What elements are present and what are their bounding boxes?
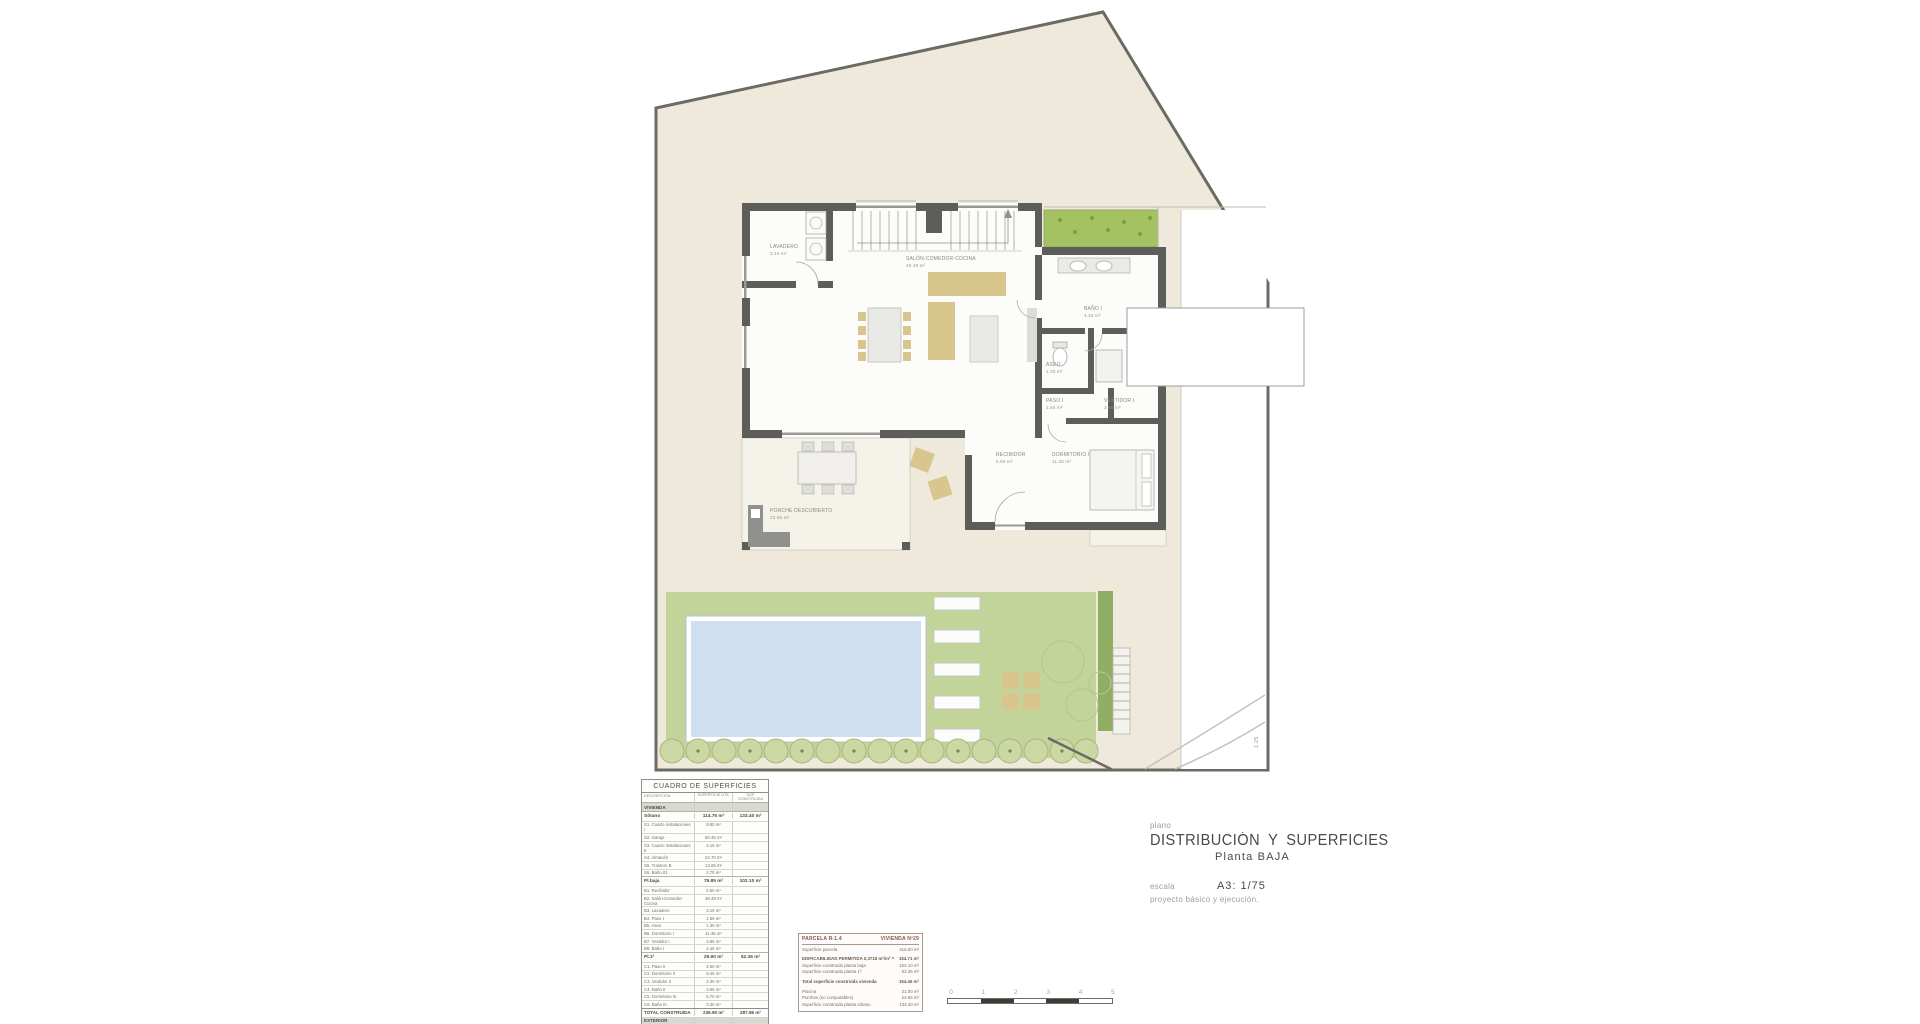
row-built-value [733, 854, 768, 861]
table-row: S5. Trastero B 13.05 m² [642, 861, 768, 869]
row-built-value [733, 915, 768, 922]
sheet-title: DISTRIBUCIÓN Y SUPERFICIES [1150, 832, 1362, 850]
table-row: Sótano 114.75 m² 133.40 m² [642, 811, 768, 821]
row-built-value [733, 1001, 768, 1008]
row-util-value [695, 804, 733, 811]
row-util-value: 24.70 m² [695, 854, 733, 861]
row-built-value [733, 986, 768, 993]
row-util-value: 2.70 m² [695, 870, 733, 877]
row-built-value [733, 978, 768, 985]
parcel-box-rows: Superficie parcela 416.00 m² EDIFICABILI… [802, 947, 919, 1009]
row-util-value: 4.45 m² [695, 945, 733, 952]
bed [1090, 450, 1154, 510]
title-block: plano DISTRIBUCIÓN Y SUPERFICIES Planta … [1150, 821, 1375, 904]
table-row: C3. Vestidor II 2.30 m² [642, 977, 768, 985]
row-label: S5. Trastero B [642, 862, 695, 869]
surfaces-table-body: VIVIENDA Sótano 114.75 m² 133.40 m² S1. … [642, 803, 768, 1024]
row-label: C4. Baño II [642, 986, 695, 993]
scale-bar-ticks: 012345 [947, 989, 1113, 998]
room-label-salon: SALÓN-COMEDOR-COCINA48.49 m² [906, 256, 976, 268]
tv-unit [1027, 308, 1037, 362]
summary-row: Total superficie construida vivienda 154… [802, 979, 919, 985]
vivienda-id: VIVIENDA Nº29 [881, 936, 919, 942]
row-label: S2. Garaje [642, 834, 695, 841]
parcel-box-header: PARCELA R-1.4 VIVIENDA Nº29 [802, 936, 919, 945]
row-util-value: 3.15 m² [695, 907, 733, 914]
row-built-value [733, 971, 768, 978]
row-label: S3. Cuarto instalaciones II [642, 842, 695, 854]
scale-tick: 0 [947, 989, 955, 998]
row-built-value [733, 907, 768, 914]
plan-drawing [0, 0, 1920, 1024]
row-label: VIVIENDA [642, 804, 695, 811]
row-label: B2. Salón-Comedor-Cocina [642, 895, 695, 907]
scale-bar: 012345 [947, 989, 1113, 1004]
row-util-value: 6.70 m² [695, 993, 733, 1000]
row-util-value: 60.35 m² [695, 834, 733, 841]
row-built-value [733, 895, 768, 907]
row-util-value: 29.90 m² [695, 954, 733, 961]
row-util-value: 3.30 m² [695, 1001, 733, 1008]
table-row: C1. Paso II 4.50 m² [642, 962, 768, 970]
parcel-summary-box: PARCELA R-1.4 VIVIENDA Nº29 Superficie p… [798, 933, 923, 1012]
scale-tick: 4 [1077, 989, 1085, 998]
row-util-value: 3.65 m² [695, 986, 733, 993]
row-label: C1. Paso II [642, 963, 695, 970]
row-label: B8. Baño I [642, 945, 695, 952]
row-built-value [733, 938, 768, 945]
table-row: C6. Baño III 3.30 m² [642, 1000, 768, 1008]
table-row: TOTAL CONSTRUIDA 236.90 m² 287.86 m² [642, 1008, 768, 1017]
column-header: DESCRIPCIÓN [642, 793, 695, 803]
summary-value: 52.36 m² [902, 969, 919, 975]
room-label-paso: PASO I1.66 m² [1046, 398, 1064, 410]
table-row: B4. Paso I 1.66 m² [642, 914, 768, 922]
surfaces-table: CUADRO DE SUPERFICIES DESCRIPCIÓN SUPERF… [641, 779, 769, 1024]
row-built-value [733, 923, 768, 930]
column-header: SUP. CONSTRUIDA [733, 793, 768, 803]
dining-set [858, 308, 911, 362]
summary-row: Superficie construida planta 1ª 52.36 m² [802, 969, 919, 975]
row-built-value: 102.10 m² [733, 878, 768, 885]
row-label: C5. Dormitorio III [642, 993, 695, 1000]
summary-row: Superficie construida planta sótano 133.… [802, 1002, 919, 1008]
summary-label: Superficie construida planta sótano [802, 1002, 871, 1008]
scale-tick: 5 [1109, 989, 1117, 998]
table-row: B7. Vestidor I 3.85 m² [642, 937, 768, 945]
row-built-value [733, 1018, 768, 1024]
summary-row: Superficie parcela 416.00 m² [802, 947, 919, 953]
room-label-bano: BAÑO I4.45 m² [1084, 306, 1102, 318]
row-label: B6. Dormitorio I [642, 930, 695, 937]
table-row: B5. Aseo 1.30 m² [642, 922, 768, 930]
table-row: S4. Almacén 24.70 m² [642, 853, 768, 861]
row-built-value [733, 862, 768, 869]
pool [686, 616, 926, 742]
row-util-value [695, 1018, 733, 1024]
scale-tick: 3 [1044, 989, 1052, 998]
summary-label: Superficie construida planta 1ª [802, 969, 861, 975]
row-util-value: 79.85 m² [695, 878, 733, 885]
row-util-value: 3.85 m² [695, 938, 733, 945]
room-label-recibidor: RECIBIDOR5.60 m² [996, 452, 1026, 464]
sheet-subtitle: Planta BAJA [1150, 851, 1355, 863]
room-label-lavadero: LAVADERO3.15 m² [770, 244, 798, 256]
row-built-value [733, 930, 768, 937]
row-built-value [733, 834, 768, 841]
project-note: proyecto básico y ejecución. [1150, 895, 1375, 904]
row-label: B5. Aseo [642, 923, 695, 930]
row-built-value [733, 870, 768, 877]
hedge-row [660, 739, 1098, 763]
row-built-value [733, 887, 768, 894]
row-util-value: 1.30 m² [695, 923, 733, 930]
row-built-value [733, 822, 768, 834]
row-built-value [733, 804, 768, 811]
row-label: S4. Almacén [642, 854, 695, 861]
row-util-value: 5.60 m² [695, 887, 733, 894]
row-util-value: 4.15 m² [695, 842, 733, 854]
table-row: VIVIENDA [642, 803, 768, 811]
table-row: S1. Cuarto instalaciones I 9.80 m² [642, 821, 768, 834]
planter-strip [1098, 591, 1113, 731]
side-annotation: 1.25 [1254, 736, 1260, 748]
row-label: Pl.baja [642, 878, 695, 885]
row-util-value: 11.35 m² [695, 930, 733, 937]
row-util-value: 114.75 m² [695, 813, 733, 820]
scale-tick: 2 [1012, 989, 1020, 998]
row-label: Pl.1ª [642, 954, 695, 961]
summary-label: Total superficie construida vivienda [802, 979, 877, 985]
table-row: Pl.baja 79.85 m² 102.10 m² [642, 876, 768, 886]
row-util-value: 9.45 m² [695, 971, 733, 978]
row-util-value: 2.30 m² [695, 978, 733, 985]
escala-label: escala [1150, 882, 1175, 891]
row-label: B3. Lavadero [642, 907, 695, 914]
row-label: TOTAL CONSTRUIDA [642, 1009, 695, 1016]
room-label-aseo: ASEO1.30 m² [1046, 362, 1063, 374]
row-util-value: 9.80 m² [695, 822, 733, 834]
row-label: S6. Baño 01 [642, 870, 695, 877]
row-built-value [733, 945, 768, 952]
floor-plan-sheet: LAVADERO3.15 m² SALÓN-COMEDOR-COCINA48.4… [0, 0, 1920, 1024]
row-label: EXTERIOR [642, 1018, 695, 1024]
plano-label: plano [1150, 821, 1375, 830]
row-built-value [733, 993, 768, 1000]
table-row: S2. Garaje 60.35 m² [642, 833, 768, 841]
summary-value: 416.00 m² [899, 947, 919, 953]
table-row: B6. Dormitorio I 11.35 m² [642, 929, 768, 937]
roof-planter [1044, 210, 1158, 247]
row-util-value: 4.50 m² [695, 963, 733, 970]
row-util-value: 236.90 m² [695, 1009, 733, 1016]
table-row: Pl.1ª 29.90 m² 52.36 m² [642, 952, 768, 962]
blank-callout-box [1127, 308, 1304, 386]
row-built-value: 52.36 m² [733, 954, 768, 961]
scale-bar-segments [947, 998, 1113, 1004]
row-built-value: 133.40 m² [733, 813, 768, 820]
table-row: B2. Salón-Comedor-Cocina 48.49 m² [642, 894, 768, 907]
table-row: EXTERIOR [642, 1017, 768, 1024]
table-row: S6. Baño 01 2.70 m² [642, 869, 768, 877]
table-row: C5. Dormitorio III 6.70 m² [642, 992, 768, 1000]
room-label-dormitorio: DORMITORIO I11.35 m² [1052, 452, 1090, 464]
row-built-value [733, 842, 768, 854]
table-row: C2. Dormitorio II 9.45 m² [642, 970, 768, 978]
room-label-vestidor: VESTIDOR I3.85 m² [1104, 398, 1134, 410]
scale-row: escala A3: 1/75 [1150, 880, 1375, 892]
surfaces-table-title: CUADRO DE SUPERFICIES [642, 780, 768, 793]
table-row: B1. Recibidor 5.60 m² [642, 886, 768, 894]
row-label: Sótano [642, 813, 695, 820]
table-row: S3. Cuarto instalaciones II 4.15 m² [642, 841, 768, 854]
scale-tick: 1 [979, 989, 987, 998]
surfaces-table-header: DESCRIPCIÓN SUPERFICIE ÚTIL SUP. CONSTRU… [642, 793, 768, 804]
room-label-porche: PORCHE DESCUBIERTO23.55 m² [770, 508, 832, 520]
column-header: SUPERFICIE ÚTIL [695, 793, 733, 803]
row-label: C6. Baño III [642, 1001, 695, 1008]
row-built-value: 287.86 m² [733, 1009, 768, 1016]
sofa [970, 316, 998, 362]
row-util-value: 48.49 m² [695, 895, 733, 907]
row-label: B1. Recibidor [642, 887, 695, 894]
exterior-stair [1113, 648, 1130, 734]
escala-value: A3: 1/75 [1217, 880, 1266, 892]
parcel-id: PARCELA R-1.4 [802, 936, 842, 942]
table-row: C4. Baño II 3.65 m² [642, 985, 768, 993]
row-label: B4. Paso I [642, 915, 695, 922]
row-built-value [733, 963, 768, 970]
row-util-value: 13.05 m² [695, 862, 733, 869]
summary-label: Superficie parcela [802, 947, 837, 953]
row-label: B7. Vestidor I [642, 938, 695, 945]
row-label: C3. Vestidor II [642, 978, 695, 985]
row-util-value: 1.66 m² [695, 915, 733, 922]
garden [660, 591, 1130, 770]
row-label: C2. Dormitorio II [642, 971, 695, 978]
summary-value: 133.40 m² [899, 1002, 919, 1008]
table-row: B8. Baño I 4.45 m² [642, 944, 768, 952]
table-row: B3. Lavadero 3.15 m² [642, 906, 768, 914]
row-label: S1. Cuarto instalaciones I [642, 822, 695, 834]
summary-value: 154.46 m² [899, 979, 919, 985]
